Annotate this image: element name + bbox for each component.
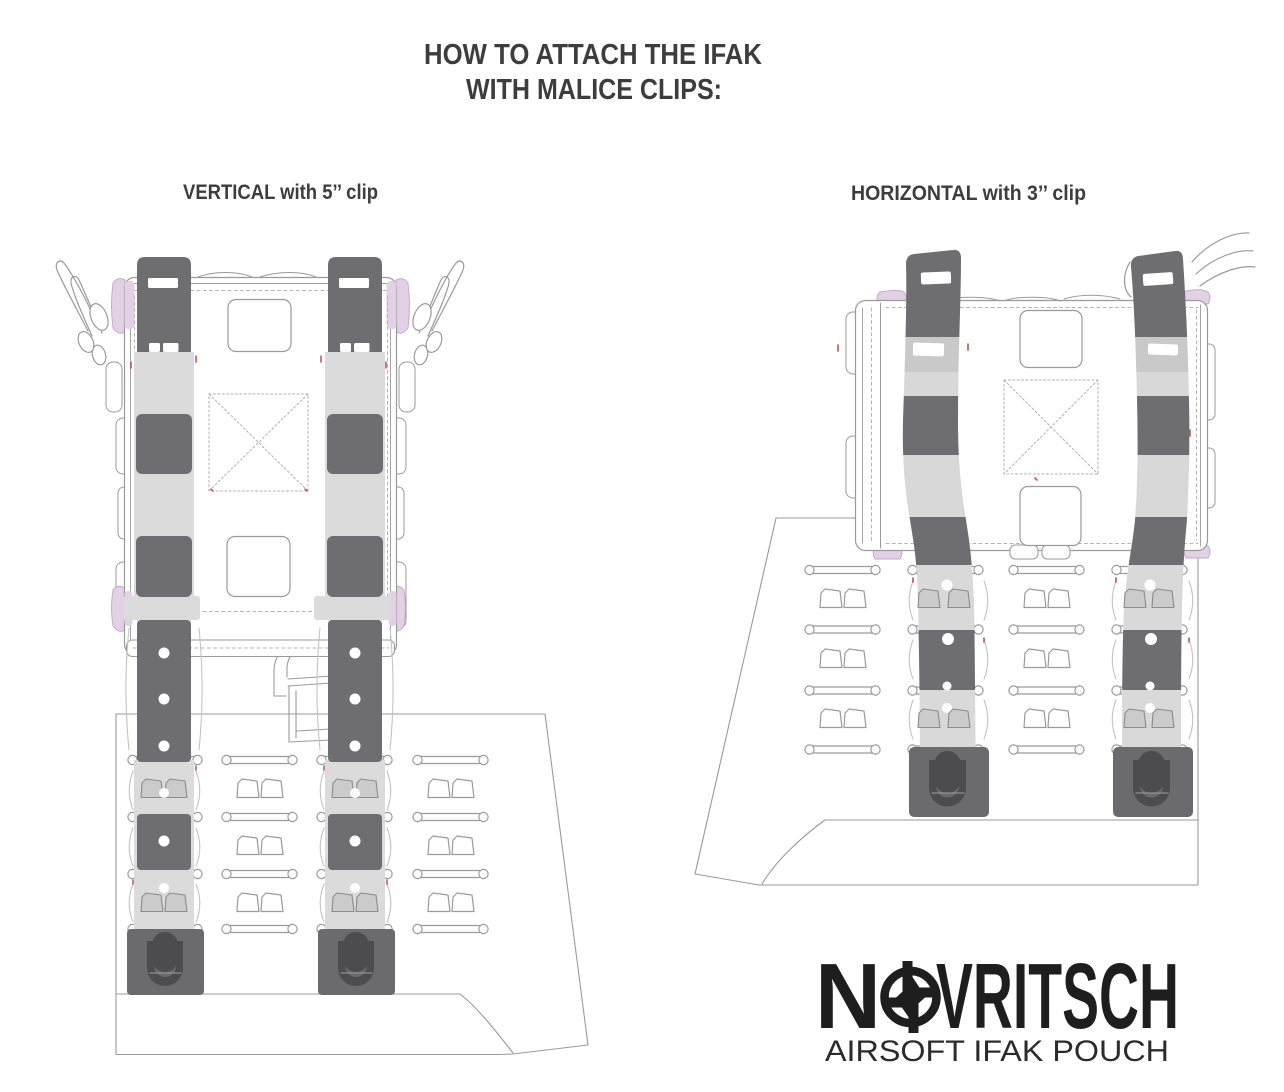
- svg-text:HOW TO ATTACH THE IFAK: HOW TO ATTACH THE IFAK: [424, 39, 762, 71]
- svg-text:VERTICAL with 5’’ clip: VERTICAL with 5’’ clip: [183, 181, 378, 204]
- svg-text:N: N: [815, 944, 881, 1048]
- svg-text:WITH MALICE CLIPS:: WITH MALICE CLIPS:: [466, 74, 722, 106]
- svg-text:HORIZONTAL with 3’’ clip: HORIZONTAL with 3’’ clip: [851, 182, 1086, 205]
- svg-text:VRITSCH: VRITSCH: [936, 944, 1179, 1048]
- svg-text:AIRSOFT IFAK POUCH: AIRSOFT IFAK POUCH: [825, 1035, 1169, 1068]
